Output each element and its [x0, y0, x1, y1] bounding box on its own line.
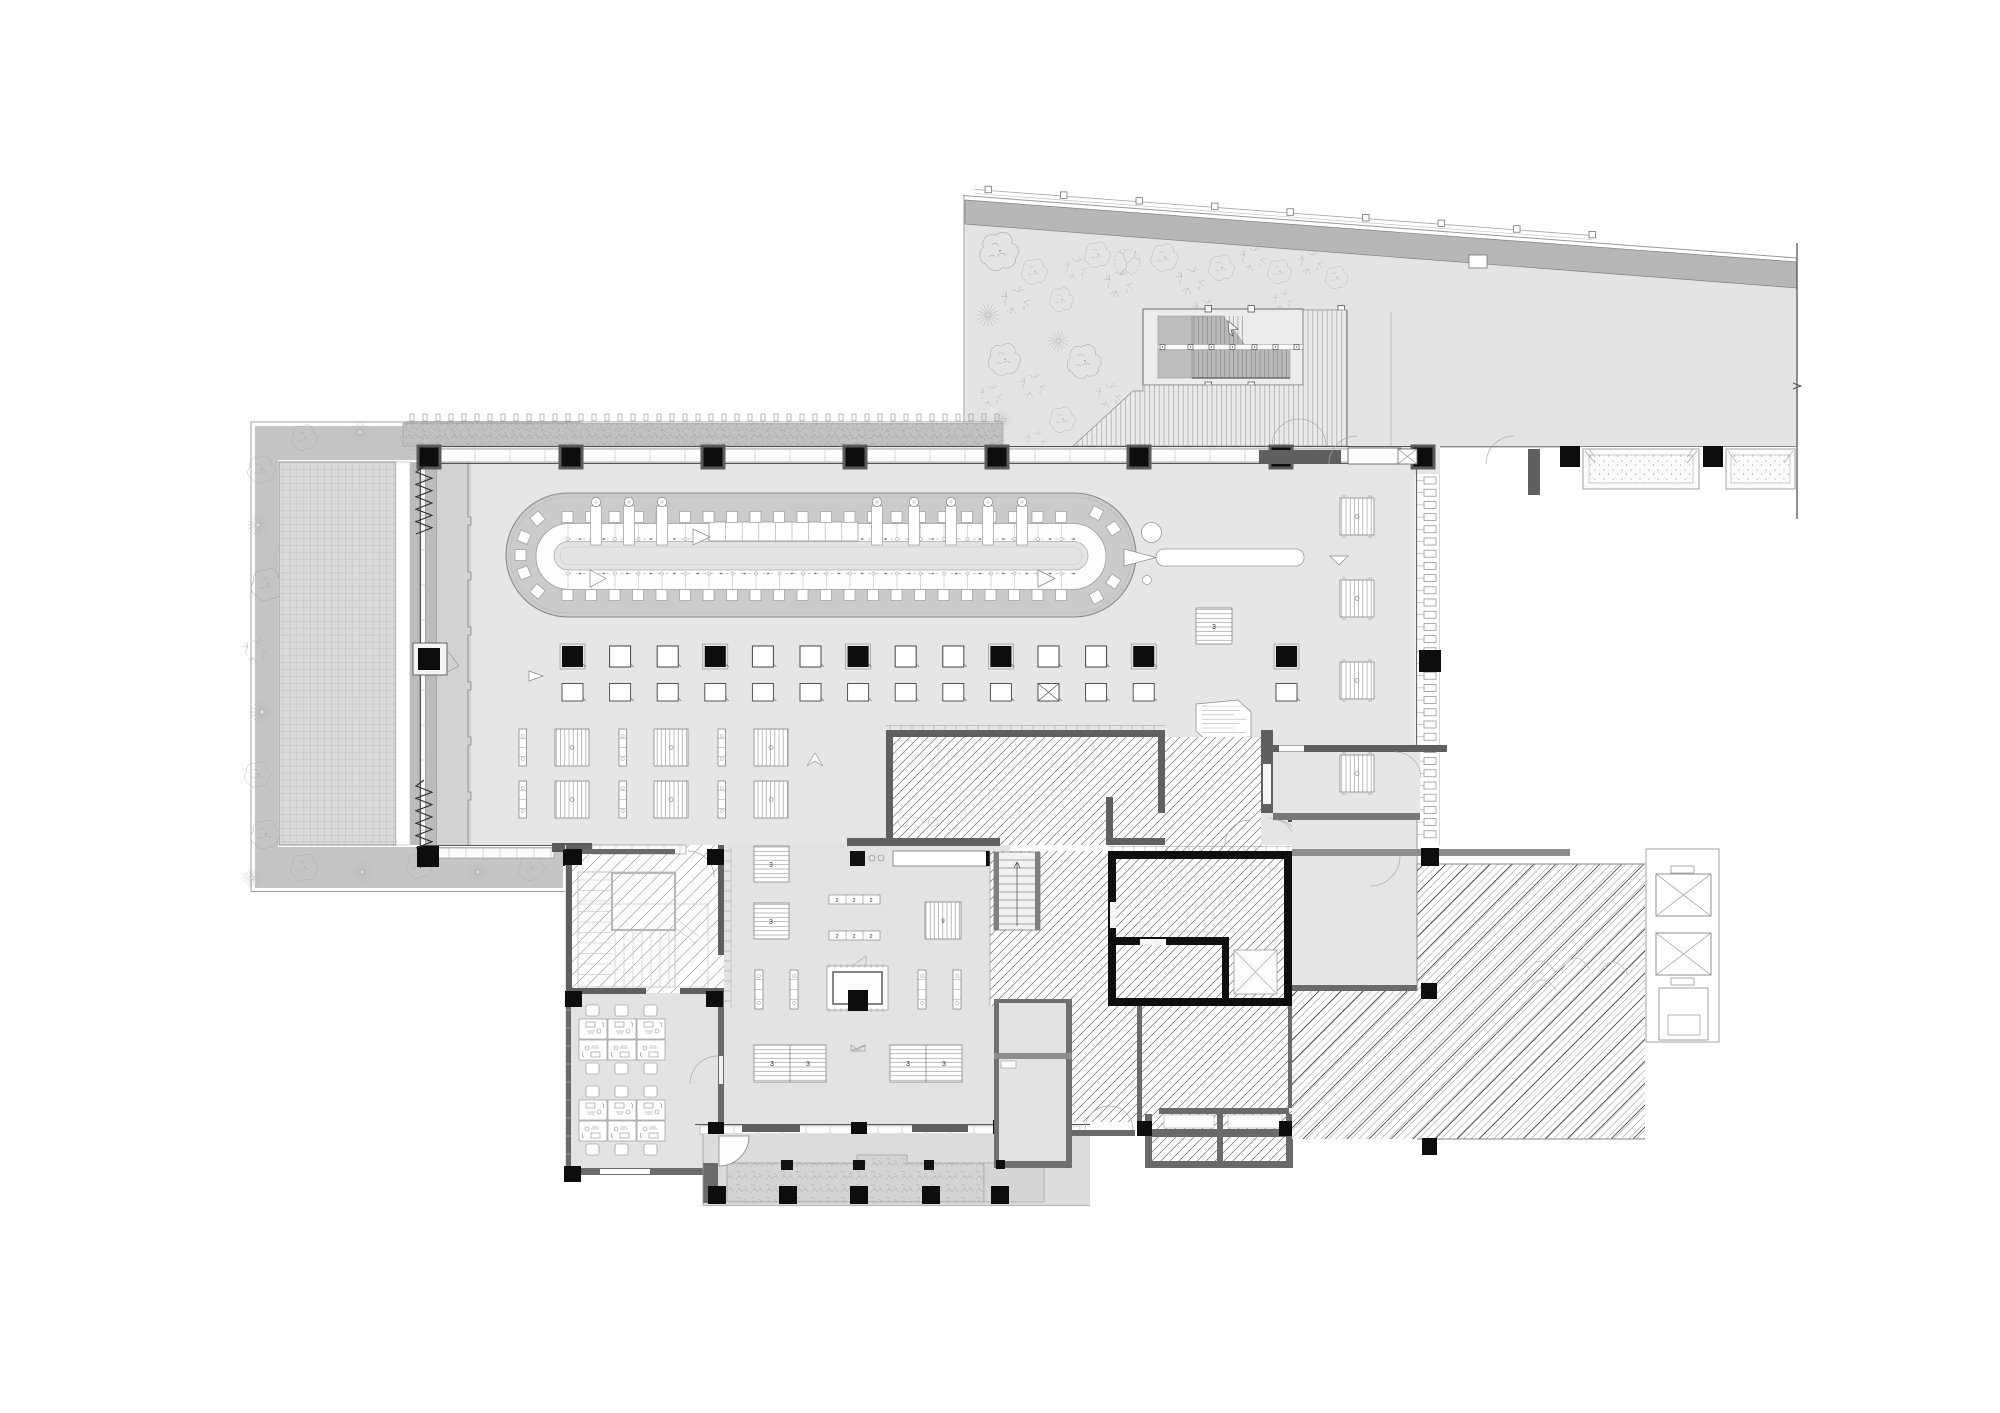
svg-text:3: 3 [769, 862, 773, 869]
svg-text:3: 3 [1212, 624, 1216, 631]
svg-text:2: 2 [869, 898, 872, 904]
svg-text:2: 2 [835, 898, 838, 904]
svg-text:3: 3 [770, 1061, 774, 1068]
svg-text:2: 2 [852, 898, 855, 904]
svg-text:2: 2 [835, 934, 838, 940]
svg-text:2: 2 [869, 934, 872, 940]
svg-text:3: 3 [769, 919, 773, 926]
svg-text:3: 3 [806, 1061, 810, 1068]
svg-text:2: 2 [852, 934, 855, 940]
svg-text:3: 3 [942, 1061, 946, 1068]
svg-text:3: 3 [906, 1061, 910, 1068]
